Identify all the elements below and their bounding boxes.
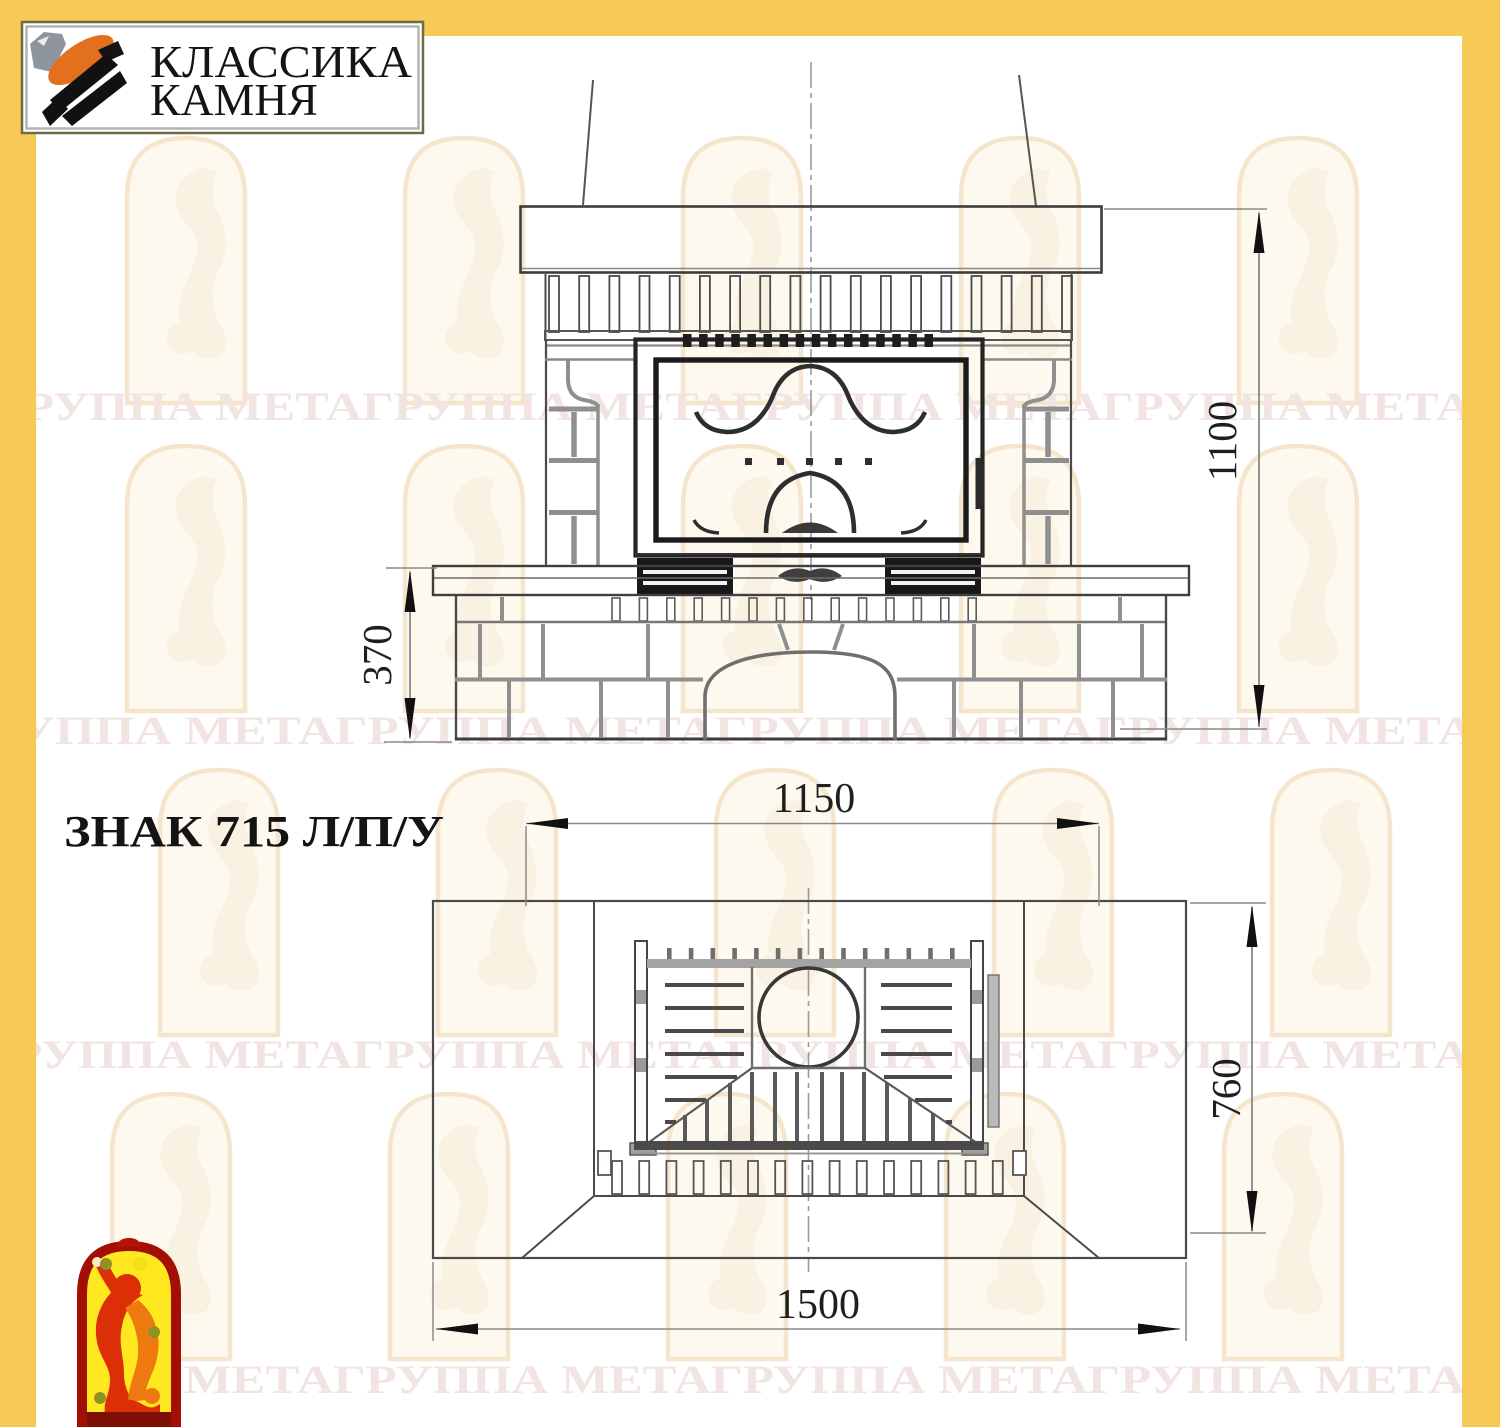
- svg-text:1100: 1100: [1199, 401, 1245, 481]
- svg-text:760: 760: [1203, 1058, 1249, 1120]
- svg-text:ЗНАК 715 Л/П/У: ЗНАК 715 Л/П/У: [64, 807, 444, 856]
- svg-text:370: 370: [354, 624, 400, 686]
- svg-text:ГРУППА МЕТАГРУППА МЕТАГРУППА М: ГРУППА МЕТАГРУППА МЕТАГРУППА МЕТАГРУППА …: [0, 708, 1475, 753]
- svg-text:ПА МЕТАГРУППА МЕТАГРУППА МЕТАГ: ПА МЕТАГРУППА МЕТАГРУППА МЕТАГРУППА МЕТА: [95, 1357, 1465, 1402]
- svg-text:КАМНЯ: КАМНЯ: [150, 74, 318, 125]
- svg-text:ГРУППА МЕТАГРУППА МЕТАГРУППА М: ГРУППА МЕТАГРУППА МЕТАГРУППА МЕТАГРУППА …: [0, 384, 1472, 429]
- svg-text:1150: 1150: [773, 776, 855, 822]
- svg-text:1500: 1500: [776, 1282, 860, 1328]
